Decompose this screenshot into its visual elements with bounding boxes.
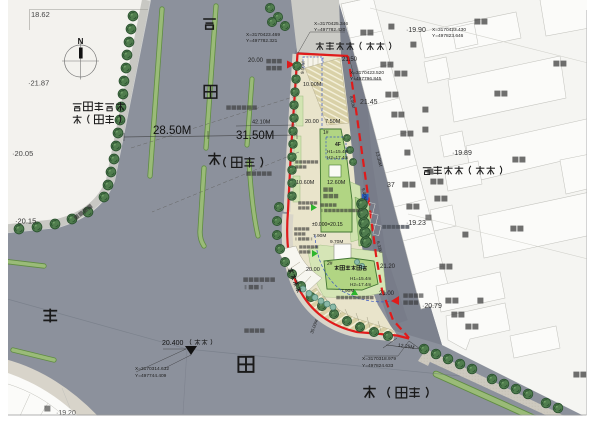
svg-text:·20.05: ·20.05 (12, 149, 33, 158)
svg-text:20.00: 20.00 (248, 58, 264, 64)
svg-text:1#: 1# (323, 130, 329, 136)
svg-text:·20.79: ·20.79 (422, 303, 442, 310)
svg-text:7.90M: 7.90M (341, 288, 354, 294)
svg-text:21.00: 21.00 (379, 291, 395, 297)
svg-text:Y=497782.321: Y=497782.321 (246, 38, 278, 44)
svg-text:X=3170423.430: X=3170423.430 (432, 27, 466, 33)
svg-text:X=3170318.979: X=3170318.979 (362, 356, 396, 362)
svg-text:X=3170423.469: X=3170423.469 (246, 32, 280, 38)
svg-text:20.00: 20.00 (305, 119, 319, 125)
svg-text:4F: 4F (335, 142, 341, 148)
svg-text:Y=497782.420: Y=497782.420 (314, 27, 346, 33)
svg-text:·19.89: ·19.89 (452, 150, 472, 157)
svg-text:31.50M: 31.50M (236, 130, 274, 142)
svg-text:·21.87: ·21.87 (28, 79, 49, 88)
svg-text:7.50M: 7.50M (325, 119, 341, 125)
svg-text:21.20: 21.20 (380, 264, 396, 270)
svg-text:2#: 2# (327, 261, 333, 267)
svg-text:X=3170425.346: X=3170425.346 (314, 21, 348, 27)
svg-text:10.00M: 10.00M (303, 82, 322, 88)
svg-text:·20.15: ·20.15 (15, 217, 36, 226)
svg-text:Y=497823.646: Y=497823.646 (432, 33, 464, 39)
svg-text:·19.90: ·19.90 (406, 27, 426, 34)
svg-text:20.400: 20.400 (162, 340, 184, 347)
svg-text:20.00: 20.00 (306, 267, 320, 273)
svg-text:Y=497824.633: Y=497824.633 (362, 363, 394, 369)
svg-text:±0.000=20.15: ±0.000=20.15 (312, 222, 343, 228)
svg-text:Y=497796.845: Y=497796.845 (350, 76, 382, 82)
svg-text:21.45: 21.45 (360, 99, 378, 106)
svg-text:12.60M: 12.60M (327, 180, 346, 186)
svg-text:X=3170314.632: X=3170314.632 (135, 366, 169, 372)
svg-text:10.60M: 10.60M (296, 180, 315, 186)
svg-text:H1=15.4m: H1=15.4m (327, 149, 348, 154)
svg-text:37: 37 (387, 182, 395, 189)
svg-text:H1=15.4m: H1=15.4m (350, 276, 371, 281)
svg-text:X=3170423.520: X=3170423.520 (350, 70, 384, 76)
svg-text:Y=497744.409: Y=497744.409 (135, 373, 167, 379)
svg-text:18.62: 18.62 (31, 10, 50, 19)
svg-text:42.10M: 42.10M (252, 120, 271, 126)
svg-text:H2=17.4m: H2=17.4m (327, 155, 348, 160)
svg-text:9.70M: 9.70M (330, 239, 343, 245)
svg-text:H2=17.4m: H2=17.4m (350, 282, 371, 287)
svg-text:28.50M: 28.50M (153, 125, 191, 137)
svg-text:9.00M: 9.00M (300, 61, 306, 74)
svg-text:7.90M: 7.90M (313, 233, 326, 239)
svg-text:N: N (78, 37, 84, 46)
svg-text:21.50: 21.50 (342, 57, 358, 63)
